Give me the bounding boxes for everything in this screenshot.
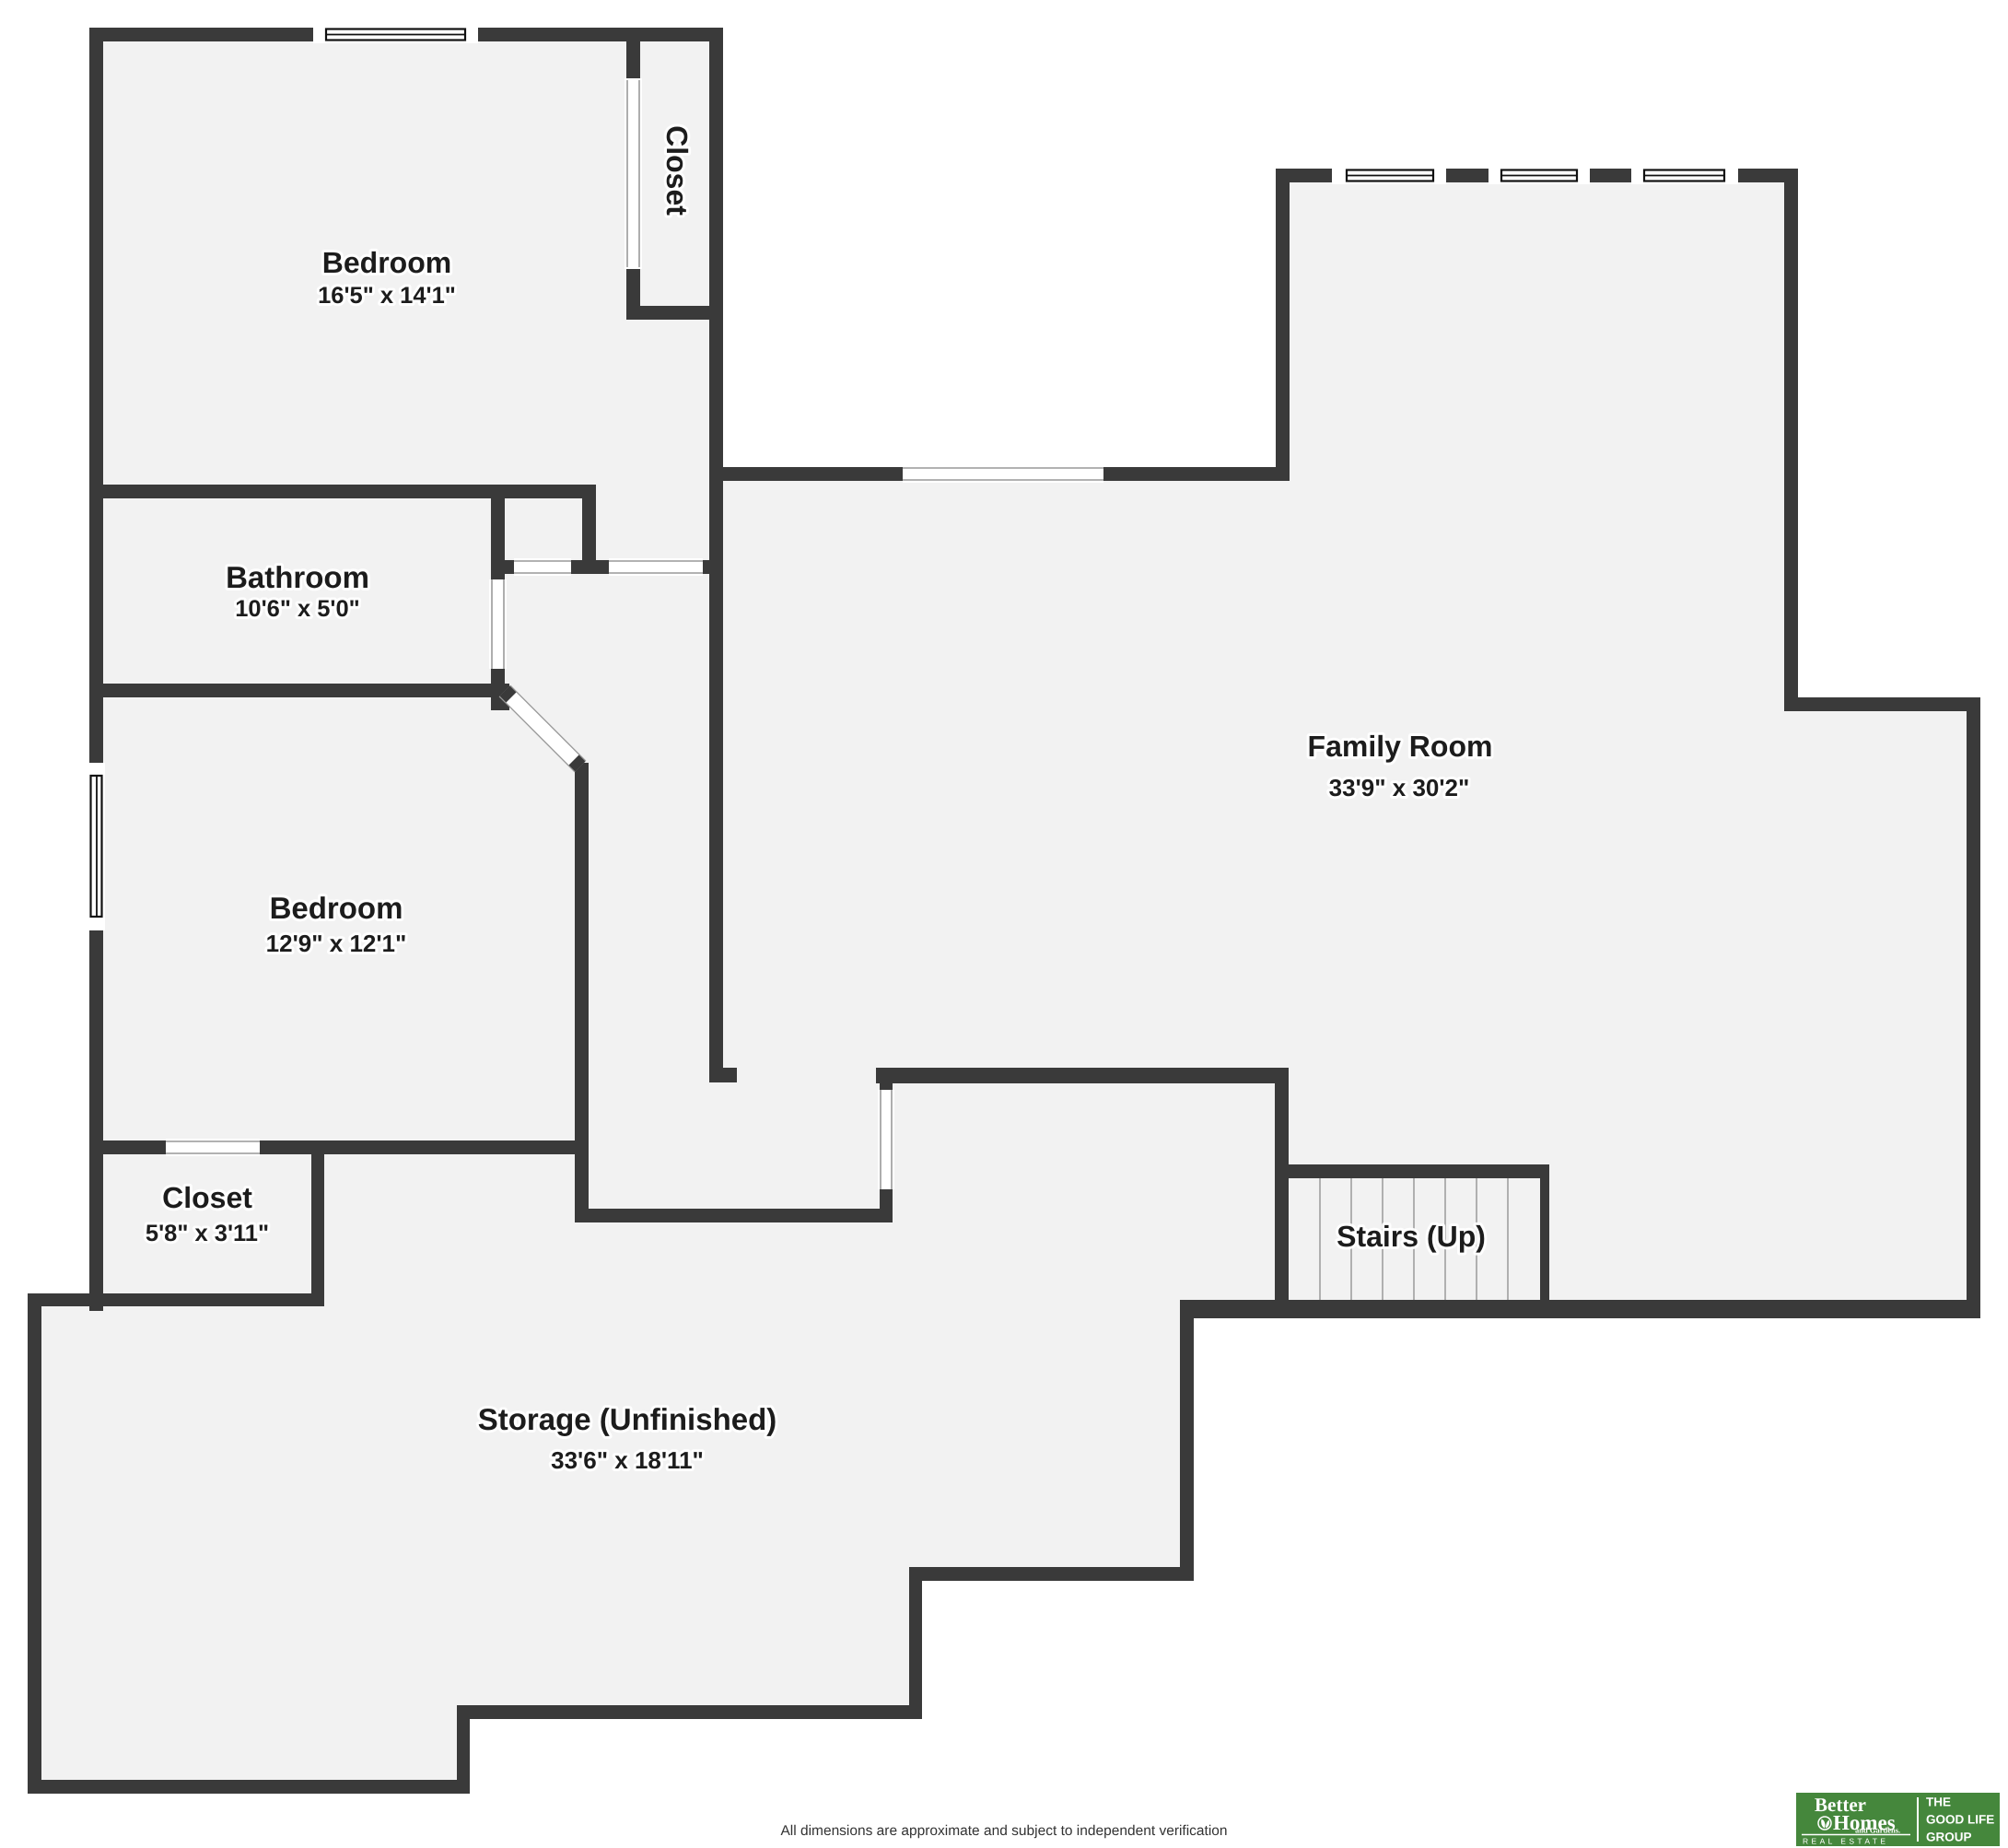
svg-text:Storage (Unfinished): Storage (Unfinished) (478, 1402, 777, 1436)
svg-text:16'5" x 14'1": 16'5" x 14'1" (318, 283, 456, 309)
svg-text:10'6" x 5'0": 10'6" x 5'0" (235, 596, 360, 622)
svg-text:GROUP: GROUP (1926, 1830, 1972, 1844)
svg-text:Family Room: Family Room (1308, 730, 1493, 763)
svg-text:Stairs (Up): Stairs (Up) (1337, 1220, 1486, 1253)
svg-text:All dimensions are approximate: All dimensions are approximate and subje… (780, 1823, 1227, 1839)
svg-text:Bathroom: Bathroom (226, 560, 369, 594)
svg-text:REAL ESTATE: REAL ESTATE (1803, 1837, 1888, 1846)
svg-text:GOOD LIFE: GOOD LIFE (1926, 1813, 1994, 1827)
svg-text:33'6" x 18'11": 33'6" x 18'11" (551, 1446, 704, 1474)
svg-text:and Gardens.: and Gardens. (1855, 1826, 1900, 1835)
svg-text:5'8" x 3'11": 5'8" x 3'11" (146, 1221, 269, 1246)
svg-text:Bedroom: Bedroom (322, 246, 451, 279)
svg-text:Closet: Closet (162, 1181, 252, 1214)
svg-text:33'9" x 30'2": 33'9" x 30'2" (1329, 774, 1470, 801)
svg-text:Closet: Closet (660, 125, 694, 216)
svg-text:12'9" x 12'1": 12'9" x 12'1" (266, 930, 407, 957)
svg-text:Bedroom: Bedroom (270, 891, 403, 925)
svg-text:THE: THE (1926, 1795, 1951, 1809)
